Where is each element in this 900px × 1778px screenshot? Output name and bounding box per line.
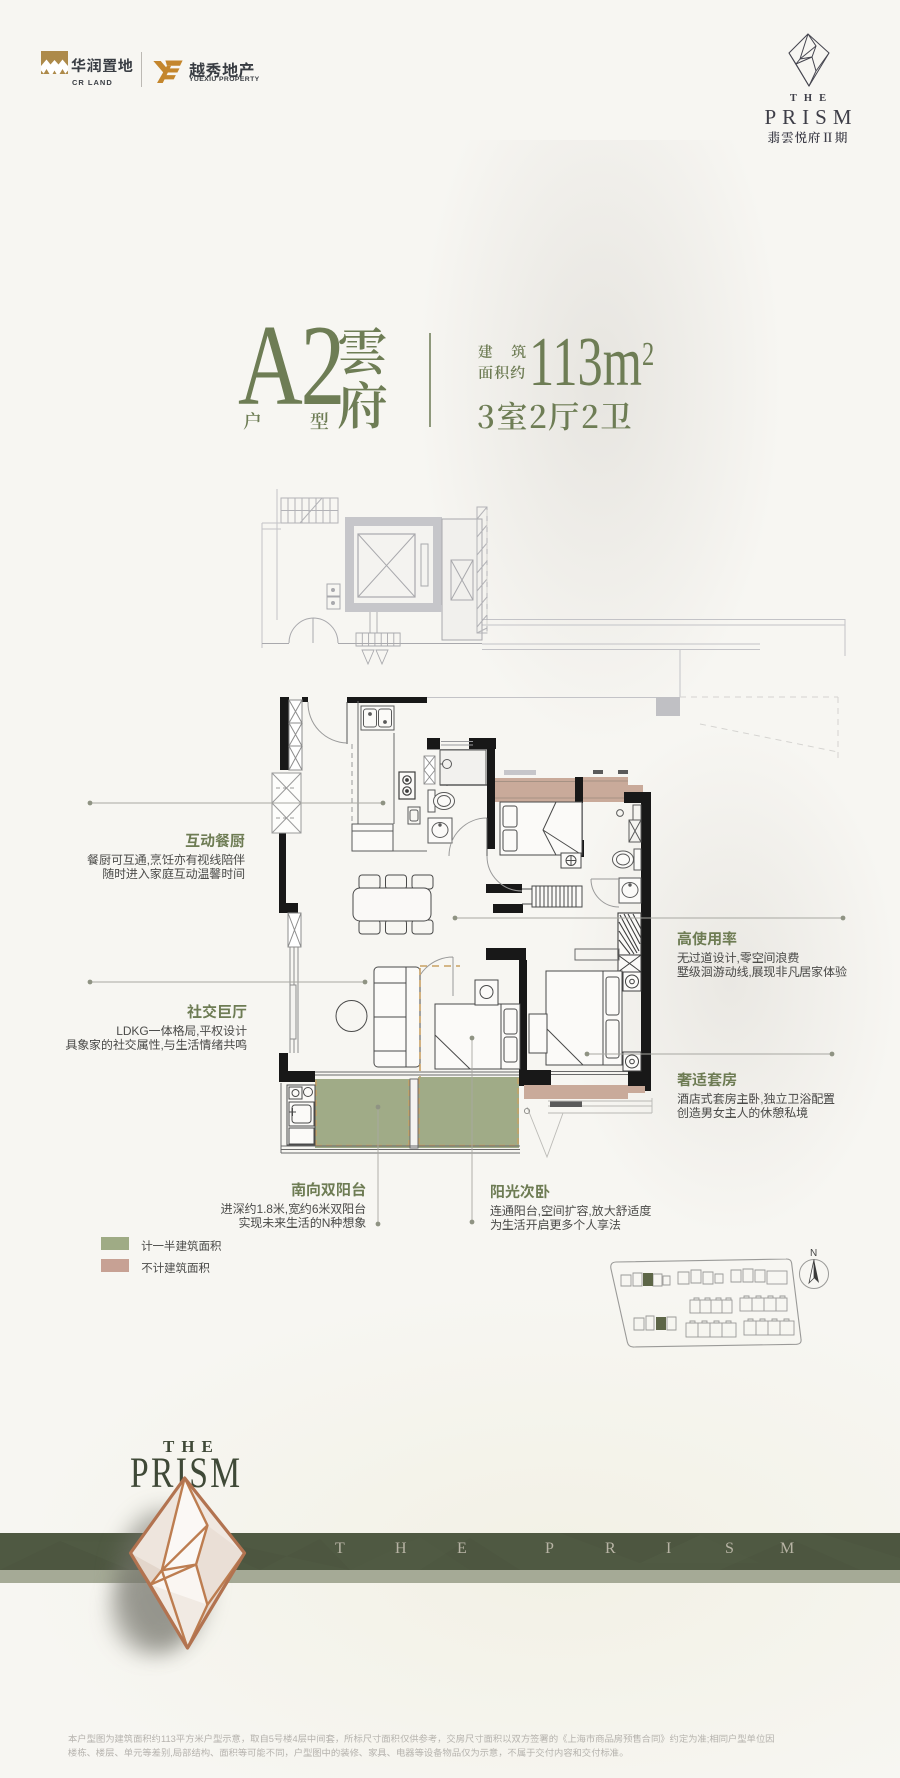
svg-text:N: N xyxy=(810,1248,817,1259)
